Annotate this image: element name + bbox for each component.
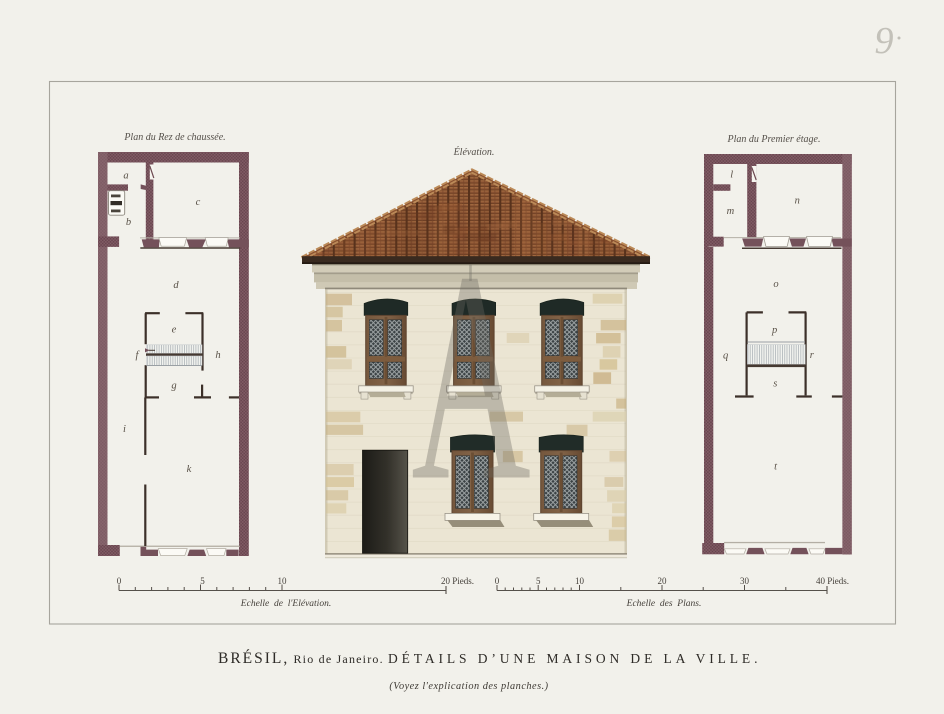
svg-text:Echelle de l'Elévation.: Echelle de l'Elévation. xyxy=(240,599,331,609)
svg-text:10: 10 xyxy=(278,576,288,586)
svg-text:0: 0 xyxy=(495,576,500,586)
svg-text:9: 9 xyxy=(875,20,894,62)
svg-text:h: h xyxy=(215,350,220,361)
svg-text:10: 10 xyxy=(575,576,585,586)
svg-text:20 Pieds.: 20 Pieds. xyxy=(441,576,474,586)
svg-text:Plan du Premier étage.: Plan du Premier étage. xyxy=(727,134,821,145)
svg-text:5: 5 xyxy=(200,576,205,586)
svg-text:o: o xyxy=(773,279,778,290)
svg-text:BRÉSIL, Rio de Janeiro. DÉTAIL: BRÉSIL, Rio de Janeiro. DÉTAILS D’UNE MA… xyxy=(218,650,761,667)
svg-text:a: a xyxy=(123,171,128,182)
svg-text:n: n xyxy=(795,196,800,207)
svg-text:c: c xyxy=(196,197,201,208)
svg-text:20: 20 xyxy=(658,576,668,586)
svg-text:m: m xyxy=(727,206,735,217)
svg-text:k: k xyxy=(187,464,192,475)
svg-text:e: e xyxy=(172,325,177,336)
svg-text:5: 5 xyxy=(536,576,541,586)
svg-text:0: 0 xyxy=(117,576,122,586)
svg-text:l: l xyxy=(730,170,733,181)
svg-text:Plan du Rez de chaussée.: Plan du Rez de chaussée. xyxy=(123,132,225,143)
svg-text:g: g xyxy=(171,381,176,392)
svg-text:30: 30 xyxy=(740,576,750,586)
svg-text:d: d xyxy=(173,280,179,291)
svg-text:40 Pieds.: 40 Pieds. xyxy=(816,576,849,586)
svg-text:A: A xyxy=(411,210,531,543)
svg-text:p: p xyxy=(771,325,777,336)
svg-text:q: q xyxy=(723,351,728,362)
svg-text:i: i xyxy=(123,424,126,435)
svg-text:(Voyez l'explication des planc: (Voyez l'explication des planches.) xyxy=(389,681,548,692)
svg-text:Élévation.: Élévation. xyxy=(453,146,495,158)
svg-text:s: s xyxy=(773,379,777,390)
svg-text:b: b xyxy=(126,217,131,228)
svg-text:Echelle des Plans.: Echelle des Plans. xyxy=(626,599,702,609)
